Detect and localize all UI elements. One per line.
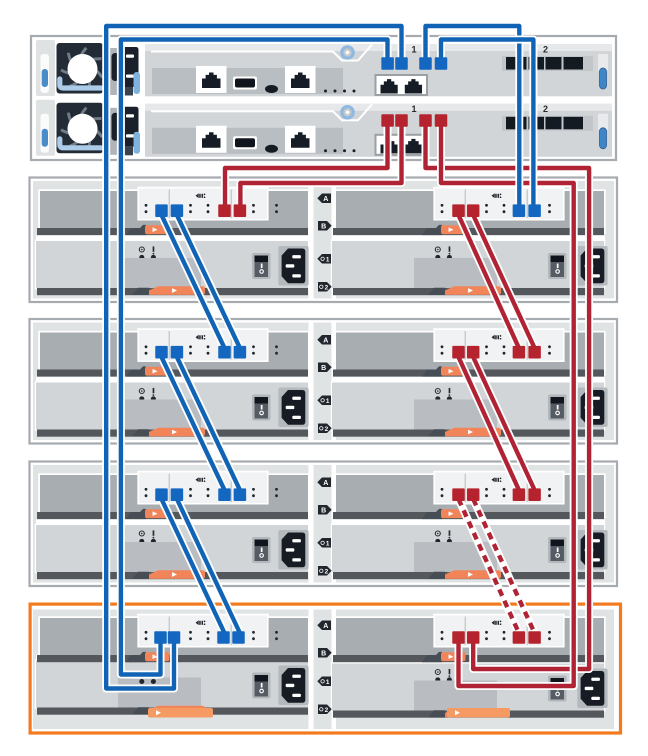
svg-text:A: A <box>323 196 328 203</box>
svg-text:B: B <box>321 223 326 230</box>
svg-text:B: B <box>321 650 326 657</box>
svg-text:A: A <box>323 623 328 630</box>
svg-text:2: 2 <box>325 568 329 575</box>
svg-text:1: 1 <box>326 256 330 263</box>
svg-text:B: B <box>321 365 326 372</box>
svg-text:2: 2 <box>325 426 329 433</box>
svg-text:2: 2 <box>325 284 329 291</box>
svg-text:1: 1 <box>326 679 330 686</box>
svg-text:B: B <box>321 507 326 514</box>
svg-text:2: 2 <box>325 707 329 714</box>
svg-text:1: 1 <box>326 398 330 405</box>
svg-text:1: 1 <box>326 540 330 547</box>
svg-text:A: A <box>323 480 328 487</box>
svg-text:A: A <box>323 337 328 344</box>
